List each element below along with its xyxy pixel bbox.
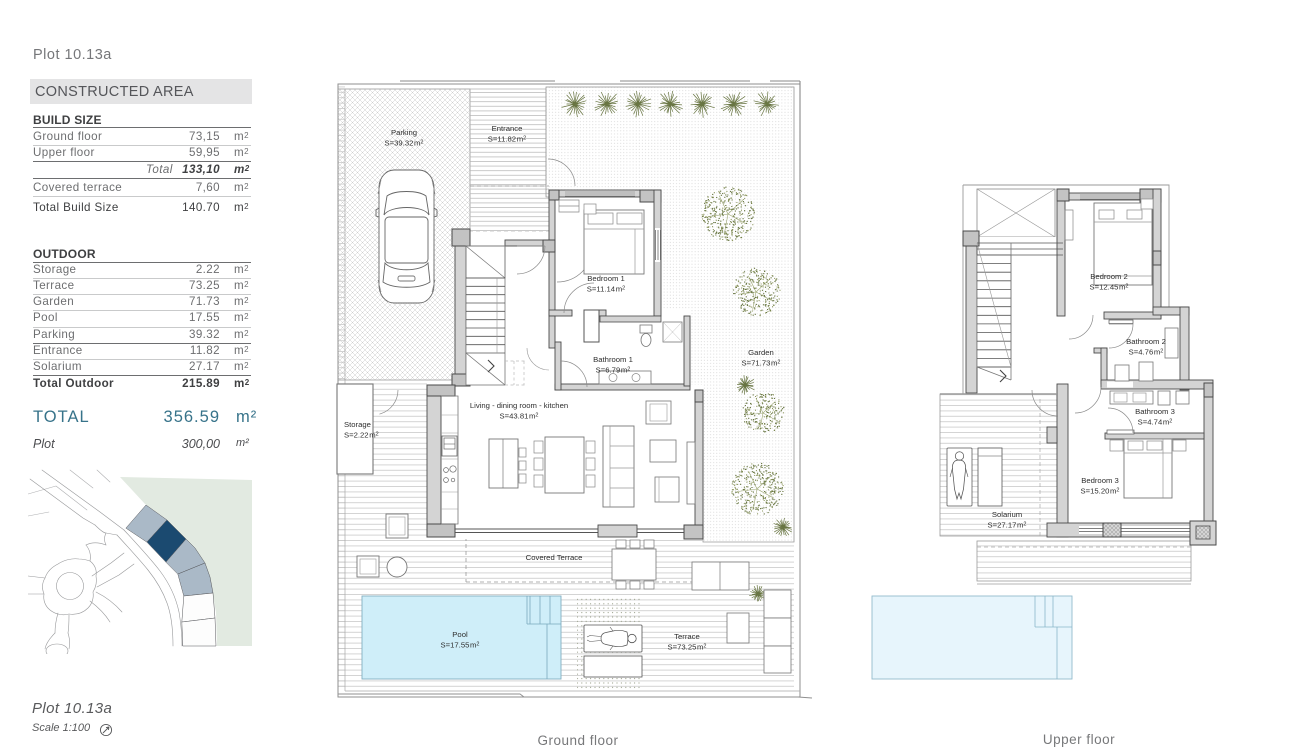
svg-text:Bedroom 2: Bedroom 2 [1090,272,1128,281]
svg-text:Parking: Parking [391,128,417,137]
svg-text:S=71.73 m2: S=71.73 m2 [742,359,781,368]
svg-text:Storage: Storage [344,420,371,429]
svg-text:S=15.20 m2: S=15.20 m2 [1081,487,1120,496]
svg-text:Terrace: Terrace [674,632,700,641]
svg-text:Bathroom 2: Bathroom 2 [1126,337,1166,346]
svg-text:S=43.81 m2: S=43.81 m2 [500,412,539,421]
svg-text:S=2.22 m2: S=2.22 m2 [344,431,379,440]
svg-text:S=27.17 m2: S=27.17 m2 [988,521,1027,530]
svg-text:S=39.32 m2: S=39.32 m2 [385,139,424,148]
svg-text:S=73.25 m2: S=73.25 m2 [668,643,707,652]
svg-text:Bathroom 1: Bathroom 1 [593,355,633,364]
svg-text:Bathroom 3: Bathroom 3 [1135,407,1175,416]
svg-text:S=12.45 m2: S=12.45 m2 [1090,283,1129,292]
svg-text:S=11.82 m2: S=11.82 m2 [488,135,526,144]
svg-text:Pool: Pool [452,630,468,639]
svg-text:Covered Terrace: Covered Terrace [526,553,583,562]
svg-text:Garden: Garden [748,348,774,357]
svg-text:S=11.14 m2: S=11.14 m2 [587,285,625,294]
svg-text:Solarium: Solarium [992,510,1022,519]
svg-text:Bedroom 3: Bedroom 3 [1081,476,1119,485]
svg-text:S=17.55 m2: S=17.55 m2 [441,641,480,650]
svg-text:Bedroom 1: Bedroom 1 [587,274,625,283]
svg-text:S=4.76 m2: S=4.76 m2 [1129,348,1164,357]
svg-text:Living - dining room - kitche: Living - dining room - kitchen [470,401,568,410]
svg-text:S=6.79 m2: S=6.79 m2 [596,366,631,375]
svg-text:Entrance: Entrance [492,124,523,133]
svg-text:S=4.74 m2: S=4.74 m2 [1138,418,1173,427]
